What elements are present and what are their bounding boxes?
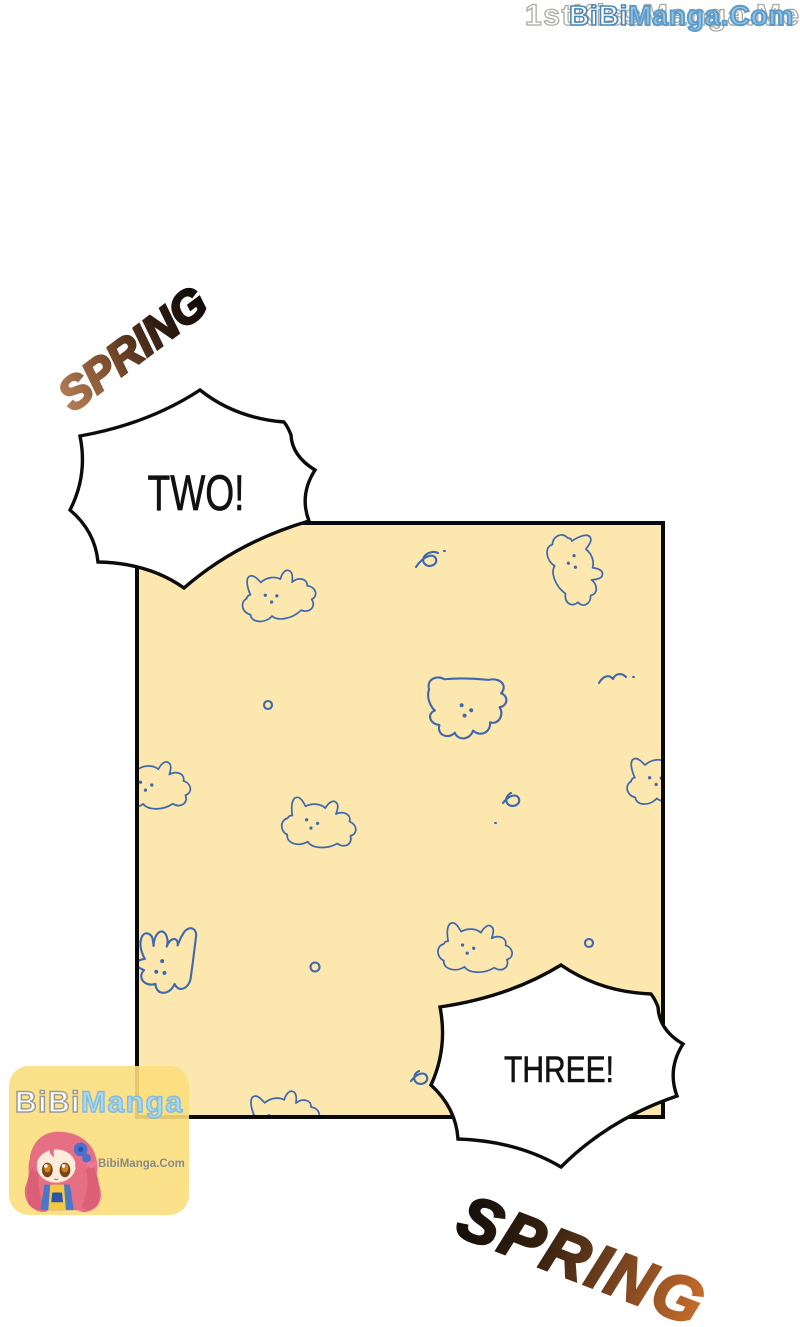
svg-text:SPRING: SPRING bbox=[448, 1182, 715, 1327]
svg-text:THREE!: THREE! bbox=[504, 1049, 614, 1090]
svg-text:TWO!: TWO! bbox=[148, 465, 245, 521]
